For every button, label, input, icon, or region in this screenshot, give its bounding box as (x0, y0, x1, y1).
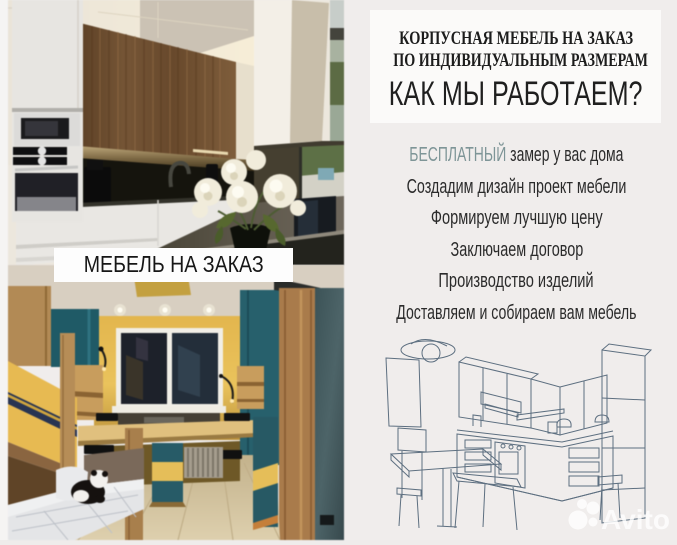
svg-text:Avito: Avito (601, 504, 670, 535)
